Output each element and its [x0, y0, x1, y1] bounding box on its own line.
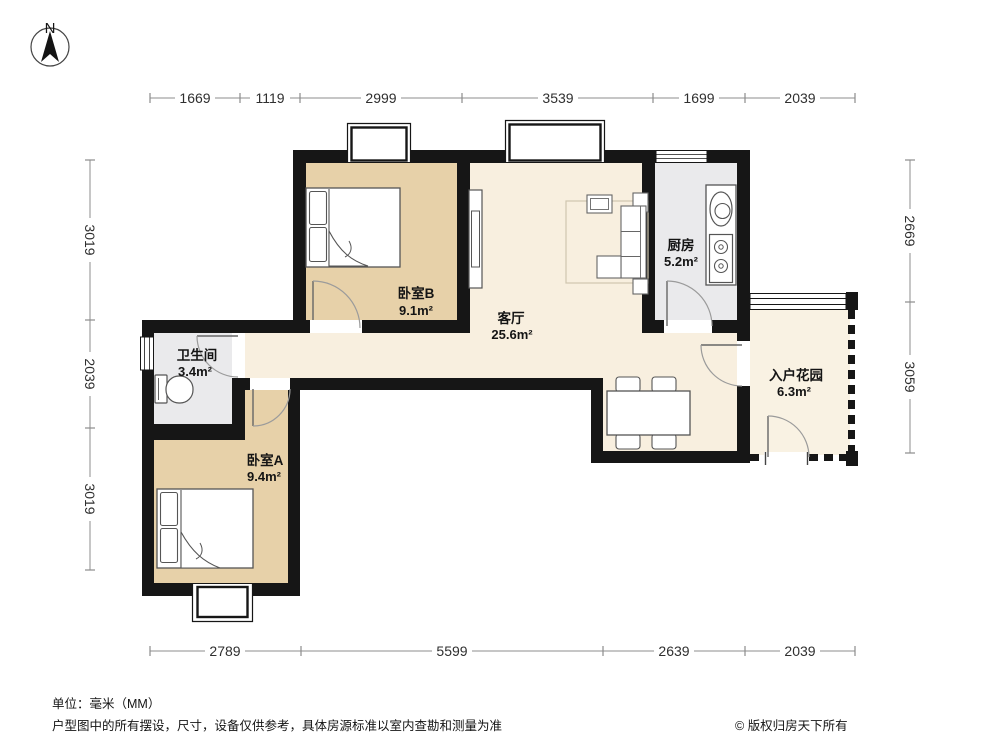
stove-icon: [710, 235, 733, 283]
garden-label: 入户花园: [769, 367, 823, 383]
dim-bottom-2: 5599: [436, 643, 467, 659]
footer: 单位：毫米（MM） 户型图中的所有摆设，尺寸，设备仅供参考，具体房源标准以室内查…: [52, 696, 848, 733]
dim-top-2: 1119: [255, 90, 284, 106]
bathroom-area: 3.4m²: [178, 364, 213, 379]
window-kitchen-icon: [656, 151, 707, 163]
opening-bedrooma: [250, 378, 290, 390]
dimension-top: 1669 1119 2999 3539 1699 2039: [150, 90, 855, 106]
opening-kitchen: [664, 320, 712, 333]
kitchen-area: 5.2m²: [664, 254, 699, 269]
floorplan-page: 卧室B 9.1m² 客厅 25.6m² 厨房 5.2m² 卫生间 3.4m² 卧…: [0, 0, 1000, 750]
living-area: 25.6m²: [491, 327, 533, 342]
dim-top-3: 2999: [365, 90, 396, 106]
window-garden-icon: [750, 294, 846, 310]
wall-garden-corner-tr: [846, 292, 858, 310]
chaise-icon: [597, 256, 621, 278]
dim-top-6: 2039: [784, 90, 815, 106]
wall-dining-left: [591, 378, 603, 463]
wall-kitchen-right-garden: [737, 150, 750, 458]
disclaimer-text: 户型图中的所有摆设，尺寸，设备仅供参考，具体房源标准以室内查勘和测量为准: [52, 718, 502, 733]
room-living-hall: [245, 333, 470, 378]
wall-hall-bottom: [245, 378, 603, 390]
dim-bottom-3: 2639: [658, 643, 689, 659]
kitchen-label: 厨房: [668, 237, 695, 253]
dim-right-1: 2669: [902, 215, 918, 246]
sink-icon: [710, 192, 732, 226]
dim-left-3: 3019: [82, 483, 98, 514]
tv-cabinet-icon: [469, 190, 482, 288]
wall-bedrooma-right: [288, 378, 300, 596]
dining-table-icon: [607, 391, 690, 435]
bedrooma-label: 卧室A: [247, 452, 284, 468]
bathroom-label: 卫生间: [177, 347, 218, 363]
north-arrow: N: [31, 20, 69, 66]
dim-top-1: 1669: [179, 90, 210, 106]
bedrooma-area: 9.4m²: [247, 469, 282, 484]
bed-a-icon: [157, 489, 253, 568]
opening-garden: [737, 341, 750, 386]
opening-bedroomb: [310, 320, 362, 333]
sofa-icon: [621, 206, 646, 278]
dim-bottom-1: 2789: [209, 643, 240, 659]
dim-right-2: 3059: [902, 361, 918, 392]
bed-b-icon: [306, 188, 400, 267]
garden-area: 6.3m²: [777, 384, 812, 399]
bedroomb-area: 9.1m²: [399, 303, 434, 318]
dimension-left: 3019 2039 3019: [82, 160, 98, 570]
opening-bathroom: [232, 333, 245, 378]
toilet-icon: [155, 375, 193, 403]
dim-left-2: 2039: [82, 358, 98, 389]
dim-left-1: 3019: [82, 224, 98, 255]
dim-bottom-4: 2039: [784, 643, 815, 659]
armrest-icon: [633, 279, 648, 294]
window-bathroom-icon: [141, 337, 154, 370]
wall-bathroom-top: [142, 320, 306, 333]
wall-bedroomb-right: [457, 150, 470, 333]
chair-icon: [616, 377, 640, 392]
dim-top-5: 1699: [683, 90, 714, 106]
living-label: 客厅: [497, 310, 526, 326]
wall-bottom: [591, 451, 750, 463]
chair-icon: [616, 434, 640, 449]
wall-bathroom-bottom: [142, 424, 245, 440]
wall-garden-corner-br: [846, 451, 858, 466]
floorplan-svg: 卧室B 9.1m² 客厅 25.6m² 厨房 5.2m² 卫生间 3.4m² 卧…: [0, 0, 1000, 750]
bay-window-bedroomb-icon: [347, 123, 411, 162]
dimension-bottom: 2789 5599 2639 2039: [150, 643, 855, 659]
unit-note: 单位：毫米（MM）: [52, 696, 160, 711]
bedroomb-label: 卧室B: [398, 285, 435, 301]
dim-top-4: 3539: [542, 90, 573, 106]
bay-window-bedrooma-icon: [192, 584, 253, 622]
copyright-text: © 版权归房天下所有: [735, 718, 848, 733]
room-bedroom-a-notch: [245, 390, 288, 440]
bay-window-living-icon: [505, 120, 605, 162]
chair-icon: [652, 377, 676, 392]
wall-bedroomb-left: [293, 150, 306, 333]
dimension-right: 2669 3059: [902, 160, 918, 453]
chair-icon: [652, 434, 676, 449]
kitchen-counter-icon: [706, 185, 736, 285]
